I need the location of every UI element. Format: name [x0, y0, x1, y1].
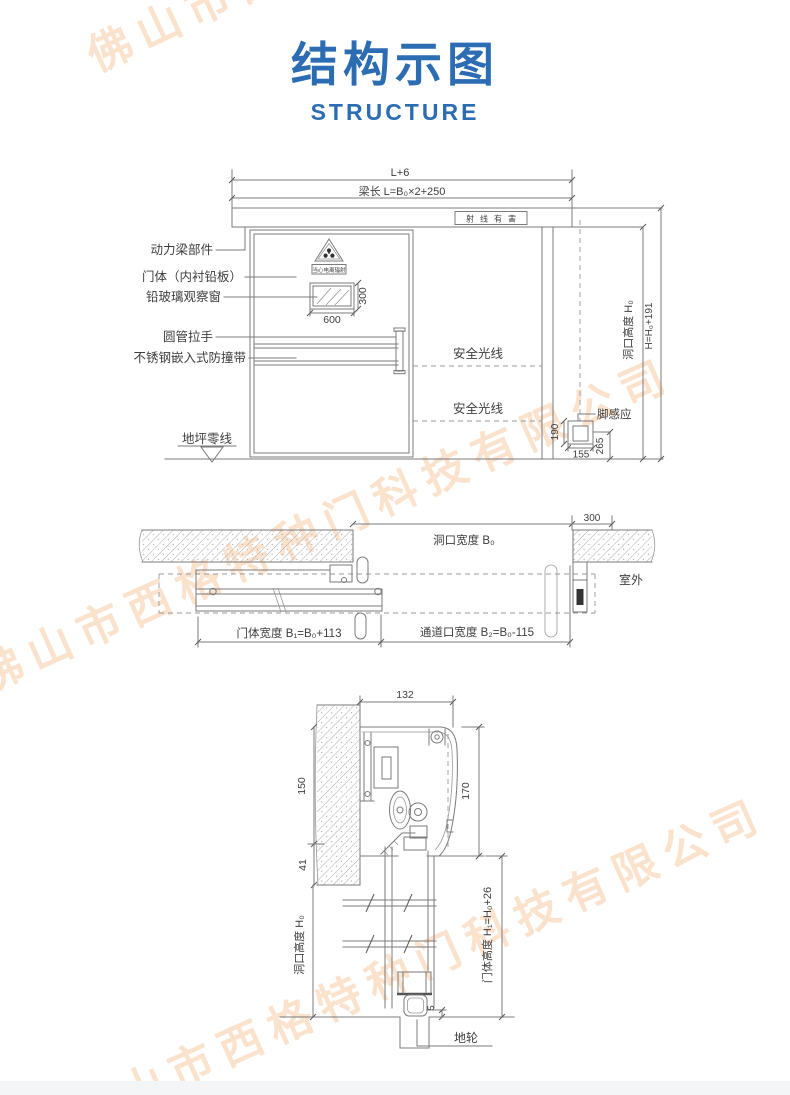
ray-warning-sign: 射线有害: [466, 214, 522, 224]
dim-lintel: 41: [297, 859, 309, 871]
header: 结构示图 STRUCTURE: [0, 0, 790, 126]
dim-passage-width: 通道口宽度 B₂=B₀-115: [420, 625, 534, 639]
dim-door-height: 门体高度 H₁=H₀+26: [480, 887, 494, 983]
label-foot-sensor: 脚感应: [597, 407, 632, 421]
page-subtitle: STRUCTURE: [0, 99, 790, 126]
caution-sign-text: 当心电离辐射: [312, 266, 346, 274]
vertical-section-view: 132: [280, 689, 514, 1048]
dim-door-width: 门体宽度 B₁=B₀+113: [237, 626, 342, 640]
label-ground-wheel: 地轮: [454, 1031, 478, 1045]
label-safety-light-lower: 安全光线: [453, 401, 504, 416]
dim-opening-height: 洞口高度 H₀: [621, 300, 635, 360]
radiation-trefoil-icon: [327, 248, 331, 252]
jamb-seal: [577, 589, 584, 605]
label-floor-zero: 地坪零线: [182, 432, 233, 446]
guide-roller: [357, 557, 368, 583]
dim-track-height: 150: [296, 777, 308, 795]
drive-bracket: [330, 565, 352, 582]
page-title: 结构示图: [0, 26, 790, 95]
front-elevation-view: L+6 梁长 L=B₀×2+250 射线有害 动力梁部件 当心电离辐射: [133, 167, 664, 462]
page: 佛山市西格特种门科技有限公司 佛山市西格特种门科技有限公司 佛山市西格特种门科技…: [0, 0, 790, 1095]
dim-sensor-width: 155: [573, 450, 590, 461]
wall-left: [142, 530, 353, 562]
dim-track-width: 132: [396, 689, 414, 701]
wall-section: [317, 705, 360, 885]
dim-cover-height: 170: [460, 782, 472, 800]
guide-roller: [355, 613, 366, 639]
dim-wheel-clearance: 5: [426, 1005, 437, 1010]
plan-section-view: 洞口宽度 B₀ 300 室外: [139, 513, 655, 647]
label-handle: 圆管拉手: [163, 329, 213, 344]
tension-pulley: [431, 731, 443, 743]
dim-total-height: H=H₀+191: [644, 302, 655, 349]
label-outdoor: 室外: [619, 572, 643, 587]
label-bumper: 不锈钢嵌入式防撞带: [133, 350, 246, 365]
control-box: [374, 747, 398, 788]
dim-wall-return: 300: [584, 513, 601, 524]
dim-window-width: 600: [323, 314, 341, 326]
drive-gear: [409, 803, 427, 821]
label-safety-light-upper: 安全光线: [453, 346, 504, 361]
level-mark-icon: [201, 447, 223, 462]
dim-beam-length: 梁长 L=B₀×2+250: [359, 184, 446, 198]
dim-sensor-height: 190: [550, 423, 561, 440]
label-power-beam: 动力梁部件: [150, 242, 213, 257]
label-window: 铅玻璃观察窗: [146, 290, 221, 304]
dim-opening-width: 洞口宽度 B₀: [433, 533, 495, 547]
dim-overall-length: L+6: [391, 167, 410, 179]
dim-sensor-floor: 265: [595, 437, 606, 454]
wall-right: [573, 530, 652, 562]
dim-opening-height-section: 洞口高度 H₀: [292, 915, 306, 975]
structure-drawing: L+6 梁长 L=B₀×2+250 射线有害 动力梁部件 当心电离辐射: [0, 0, 790, 1095]
label-door-body: 门体（内衬铅板）: [142, 269, 242, 284]
dim-window-height: 300: [357, 287, 369, 305]
